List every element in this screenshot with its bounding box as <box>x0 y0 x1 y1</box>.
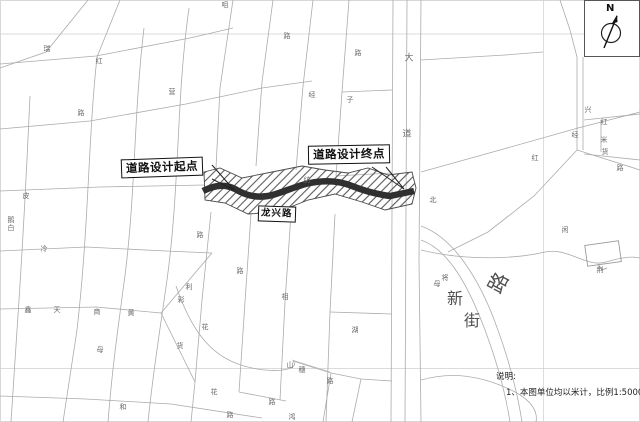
street-name-label: 鑫 <box>25 305 32 315</box>
street-name-label: 营 <box>169 87 176 97</box>
street-name-label: 穗 <box>299 365 306 375</box>
design-corridor <box>203 166 416 214</box>
street-name-label: 花 <box>202 322 209 332</box>
north-label: N <box>606 3 614 14</box>
street-name-label: 母 <box>97 345 104 355</box>
street-name-label: 路 <box>284 31 291 41</box>
street-name-label: 红 <box>601 117 608 127</box>
street-name-label: 路 <box>227 410 234 420</box>
street-name-label: 兴 <box>585 105 592 115</box>
street-name-label: 路 <box>327 376 334 386</box>
street-name-label: 花 <box>211 387 218 397</box>
street-name-label: 道 <box>402 127 411 140</box>
street-name-label: 和 <box>120 402 127 412</box>
street-name-label: 湖 <box>352 325 359 335</box>
street-name-label: 将 <box>442 273 449 283</box>
street-name-label: 母 <box>434 279 441 289</box>
street-name-label: 米 <box>601 135 608 145</box>
street-name-label: 路 <box>355 48 362 58</box>
street-name-label: 街 <box>464 307 480 331</box>
notes-line: 1、本图单位均以米计，比例1:5000。 <box>506 386 640 398</box>
street-name-label: 纺 <box>304 175 311 185</box>
road-name-callout: 龙兴路 <box>258 205 296 222</box>
street-name-label: 大 <box>404 51 413 64</box>
street-name-label: 彩 <box>178 295 185 305</box>
street-name-label: 货 <box>177 341 184 351</box>
street-name-label: 子 <box>347 95 354 105</box>
street-name-label: 闲 <box>562 225 569 235</box>
street-name-label: 山 <box>287 360 294 370</box>
design-end-callout: 道路设计终点 <box>308 144 390 164</box>
street-name-label: 白 <box>8 223 15 233</box>
street-name-label: 天 <box>54 305 61 315</box>
design-start-callout: 道路设计起点 <box>121 157 204 179</box>
street-name-label: 经 <box>572 130 579 140</box>
street-name-label: 皮 <box>23 191 30 201</box>
road-design-plan-map: 道路设计起点 道路设计终点 龙兴路 N 说明: 1、本图单位均以米计，比例1:5… <box>0 0 640 422</box>
street-name-label: 利 <box>186 282 193 292</box>
street-name-label: 路 <box>78 108 85 118</box>
street-name-label: 北 <box>430 195 437 205</box>
street-name-label: 相 <box>282 292 289 302</box>
street-name-label: 红 <box>96 56 103 66</box>
street-name-label: 货 <box>602 147 609 157</box>
street-name-label: 商 <box>94 307 101 317</box>
street-name-label: 新 <box>447 285 463 309</box>
street-name-label: 黄 <box>128 308 135 318</box>
street-name-label: 冷 <box>41 244 48 254</box>
street-name-label: 路 <box>237 266 244 276</box>
street-name-label: 经 <box>309 90 316 100</box>
street-name-label: 瑞 <box>44 44 51 54</box>
notes-title: 说明: <box>496 370 516 382</box>
street-name-label: 路 <box>617 163 624 173</box>
street-name-label: 红 <box>532 153 539 163</box>
street-name-label: 路 <box>269 397 276 407</box>
street-name-label: 鸿 <box>289 412 296 422</box>
street-name-label: 荆 <box>597 265 604 275</box>
street-name-label: 咀 <box>222 0 229 10</box>
street-name-label: 路 <box>197 230 204 240</box>
